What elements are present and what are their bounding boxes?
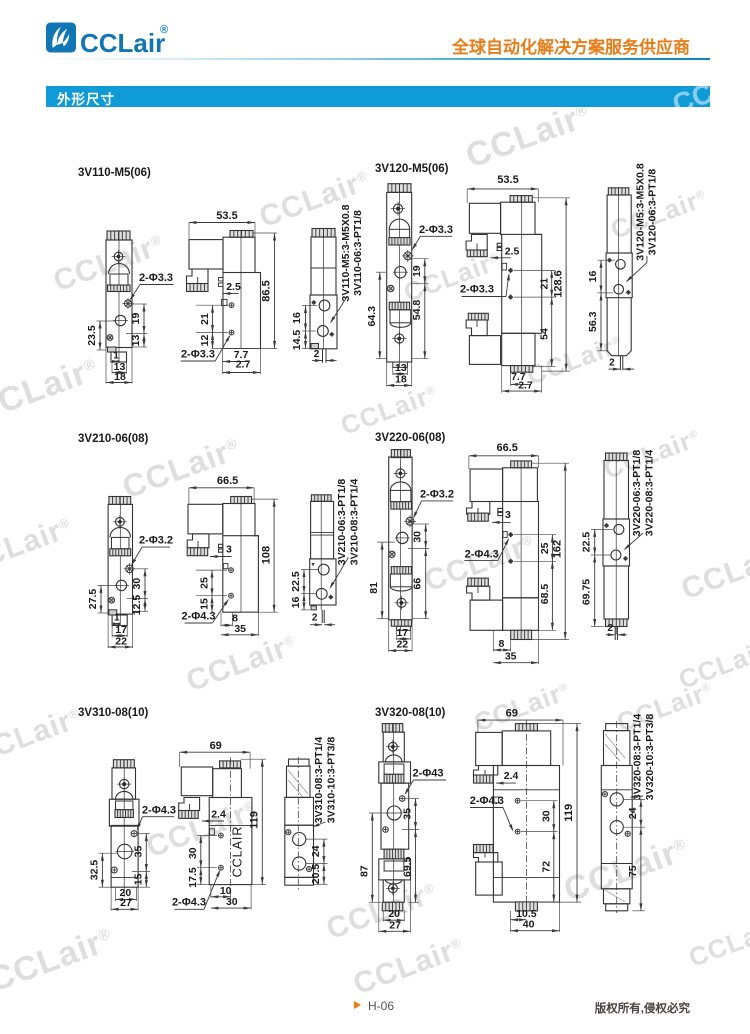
svg-text:2: 2 [314,349,320,360]
svg-text:2-Φ4.3: 2-Φ4.3 [181,611,215,623]
svg-text:27: 27 [120,897,132,909]
svg-text:27: 27 [389,919,401,931]
svg-text:3V120-06:3-PT1/8: 3V120-06:3-PT1/8 [647,169,659,256]
svg-text:30: 30 [187,847,199,859]
svg-text:54: 54 [538,328,550,340]
svg-text:2.5: 2.5 [226,281,241,293]
svg-text:66: 66 [412,578,424,590]
svg-text:3V210-06(08): 3V210-06(08) [78,433,148,445]
svg-text:14.5: 14.5 [291,330,303,351]
svg-text:2-Φ3.3: 2-Φ3.3 [460,284,494,296]
svg-text:21: 21 [199,313,211,325]
svg-text:3V220-06(08): 3V220-06(08) [375,432,445,444]
svg-text:108: 108 [261,546,273,564]
svg-text:18: 18 [395,373,407,385]
svg-text:2-Φ43: 2-Φ43 [412,768,443,780]
svg-text:2.7: 2.7 [518,379,533,391]
svg-text:2-Φ4.3: 2-Φ4.3 [465,549,499,561]
svg-text:53.5: 53.5 [216,210,237,222]
svg-text:2: 2 [312,613,318,624]
svg-text:56.3: 56.3 [587,311,599,332]
svg-text:2.4: 2.4 [504,770,519,782]
svg-text:87: 87 [358,865,370,877]
svg-text:53.5: 53.5 [497,174,518,186]
svg-text:66.5: 66.5 [496,442,517,454]
svg-text:2.5: 2.5 [505,246,520,258]
svg-text:3V310-08(10): 3V310-08(10) [78,707,148,719]
svg-text:15: 15 [132,873,144,885]
svg-text:35: 35 [402,808,414,820]
svg-text:13: 13 [130,335,142,347]
svg-text:1: 1 [113,351,119,362]
svg-text:66.5: 66.5 [217,475,238,487]
svg-text:35: 35 [132,846,144,858]
svg-text:162: 162 [551,540,563,558]
svg-text:2-Φ3.3: 2-Φ3.3 [181,349,215,361]
svg-text:30: 30 [540,810,552,822]
svg-text:16: 16 [291,312,303,324]
svg-text:2: 2 [607,623,613,634]
svg-text:3: 3 [505,509,511,521]
svg-text:35: 35 [234,623,246,635]
svg-text:25: 25 [199,577,211,589]
svg-text:22.5: 22.5 [581,532,593,553]
svg-text:16: 16 [587,271,599,283]
svg-text:3V210-08:3-PT1/4: 3V210-08:3-PT1/4 [349,479,361,566]
svg-text:19: 19 [130,313,142,325]
svg-text:25: 25 [539,542,551,554]
svg-text:119: 119 [563,804,575,822]
svg-text:81: 81 [368,582,380,594]
svg-text:32.5: 32.5 [88,860,100,881]
svg-text:17: 17 [396,627,408,639]
svg-text:2: 2 [609,358,615,369]
svg-text:2-Φ3.2: 2-Φ3.2 [139,535,173,547]
svg-text:22: 22 [115,635,127,647]
svg-text:CCLAIR: CCLAIR [231,826,245,878]
svg-text:2-Φ3.3: 2-Φ3.3 [139,272,173,284]
svg-text:20: 20 [388,908,400,920]
svg-text:13: 13 [395,362,407,374]
svg-text:72: 72 [540,861,552,873]
svg-text:3V110-06:3-PT1/8: 3V110-06:3-PT1/8 [352,210,364,296]
svg-text:3V120-M5(06): 3V120-M5(06) [375,163,449,175]
svg-text:68.5: 68.5 [539,584,551,605]
svg-text:24: 24 [627,807,639,819]
svg-text:23.5: 23.5 [86,325,98,346]
svg-text:3V320-10:3-PT3/8: 3V320-10:3-PT3/8 [644,714,656,801]
svg-text:3: 3 [226,544,232,556]
svg-text:30: 30 [412,531,424,543]
svg-text:3V210-06:3-PT1/8: 3V210-06:3-PT1/8 [336,479,348,566]
svg-text:12.5: 12.5 [131,595,143,616]
svg-text:54.8: 54.8 [411,300,423,321]
svg-text:3V220-06:3-PT1/8: 3V220-06:3-PT1/8 [631,450,643,537]
svg-text:2-Φ4.3: 2-Φ4.3 [172,897,206,909]
svg-text:2-Φ4.3: 2-Φ4.3 [470,795,504,807]
svg-text:2-Φ3.3: 2-Φ3.3 [419,224,453,236]
svg-text:3V320-08(10): 3V320-08(10) [375,707,445,719]
svg-text:40: 40 [523,919,535,931]
svg-text:3V310-10:3-PT3/8: 3V310-10:3-PT3/8 [326,737,338,824]
svg-text:30: 30 [131,578,143,590]
svg-text:69: 69 [210,740,222,752]
svg-text:24: 24 [310,845,322,857]
svg-text:17.5: 17.5 [187,867,199,888]
svg-text:2-Φ3.2: 2-Φ3.2 [420,489,454,501]
svg-text:22.5: 22.5 [290,571,302,592]
svg-text:16: 16 [290,597,302,609]
svg-text:3V220-08:3-PT1/4: 3V220-08:3-PT1/4 [644,450,656,537]
svg-text:64.3: 64.3 [366,306,378,327]
svg-text:3V120-M5:3-M5X0.8: 3V120-M5:3-M5X0.8 [635,163,647,261]
svg-text:3V110-M5:3-M5X0.8: 3V110-M5:3-M5X0.8 [340,204,352,301]
svg-text:10: 10 [220,885,232,897]
svg-text:27.5: 27.5 [87,589,99,610]
svg-text:69: 69 [506,708,518,720]
svg-text:15: 15 [199,598,211,610]
svg-text:3V320-08:3-PT1/4: 3V320-08:3-PT1/4 [632,714,644,801]
svg-text:2.7: 2.7 [236,359,251,371]
svg-text:30: 30 [226,896,238,908]
svg-text:119: 119 [249,811,261,829]
svg-text:21: 21 [538,278,550,290]
svg-text:8: 8 [498,638,504,650]
svg-text:20.5: 20.5 [310,864,322,885]
svg-text:69.75: 69.75 [581,579,593,605]
svg-text:19: 19 [411,265,423,277]
svg-text:86.5: 86.5 [261,280,273,301]
svg-text:2-Φ4.3: 2-Φ4.3 [142,805,176,817]
svg-text:3V310-08:3-PT1/4: 3V310-08:3-PT1/4 [313,737,325,824]
svg-text:69.5: 69.5 [402,856,414,877]
svg-text:17: 17 [115,624,127,636]
svg-text:12: 12 [199,335,211,347]
svg-text:2.4: 2.4 [211,809,226,821]
svg-text:1: 1 [114,612,120,623]
svg-text:18: 18 [114,371,126,383]
svg-text:35: 35 [505,650,517,662]
svg-text:75: 75 [627,865,639,877]
svg-text:22: 22 [396,638,408,650]
svg-text:3V110-M5(06): 3V110-M5(06) [78,167,151,179]
svg-text:128.6: 128.6 [552,270,564,298]
